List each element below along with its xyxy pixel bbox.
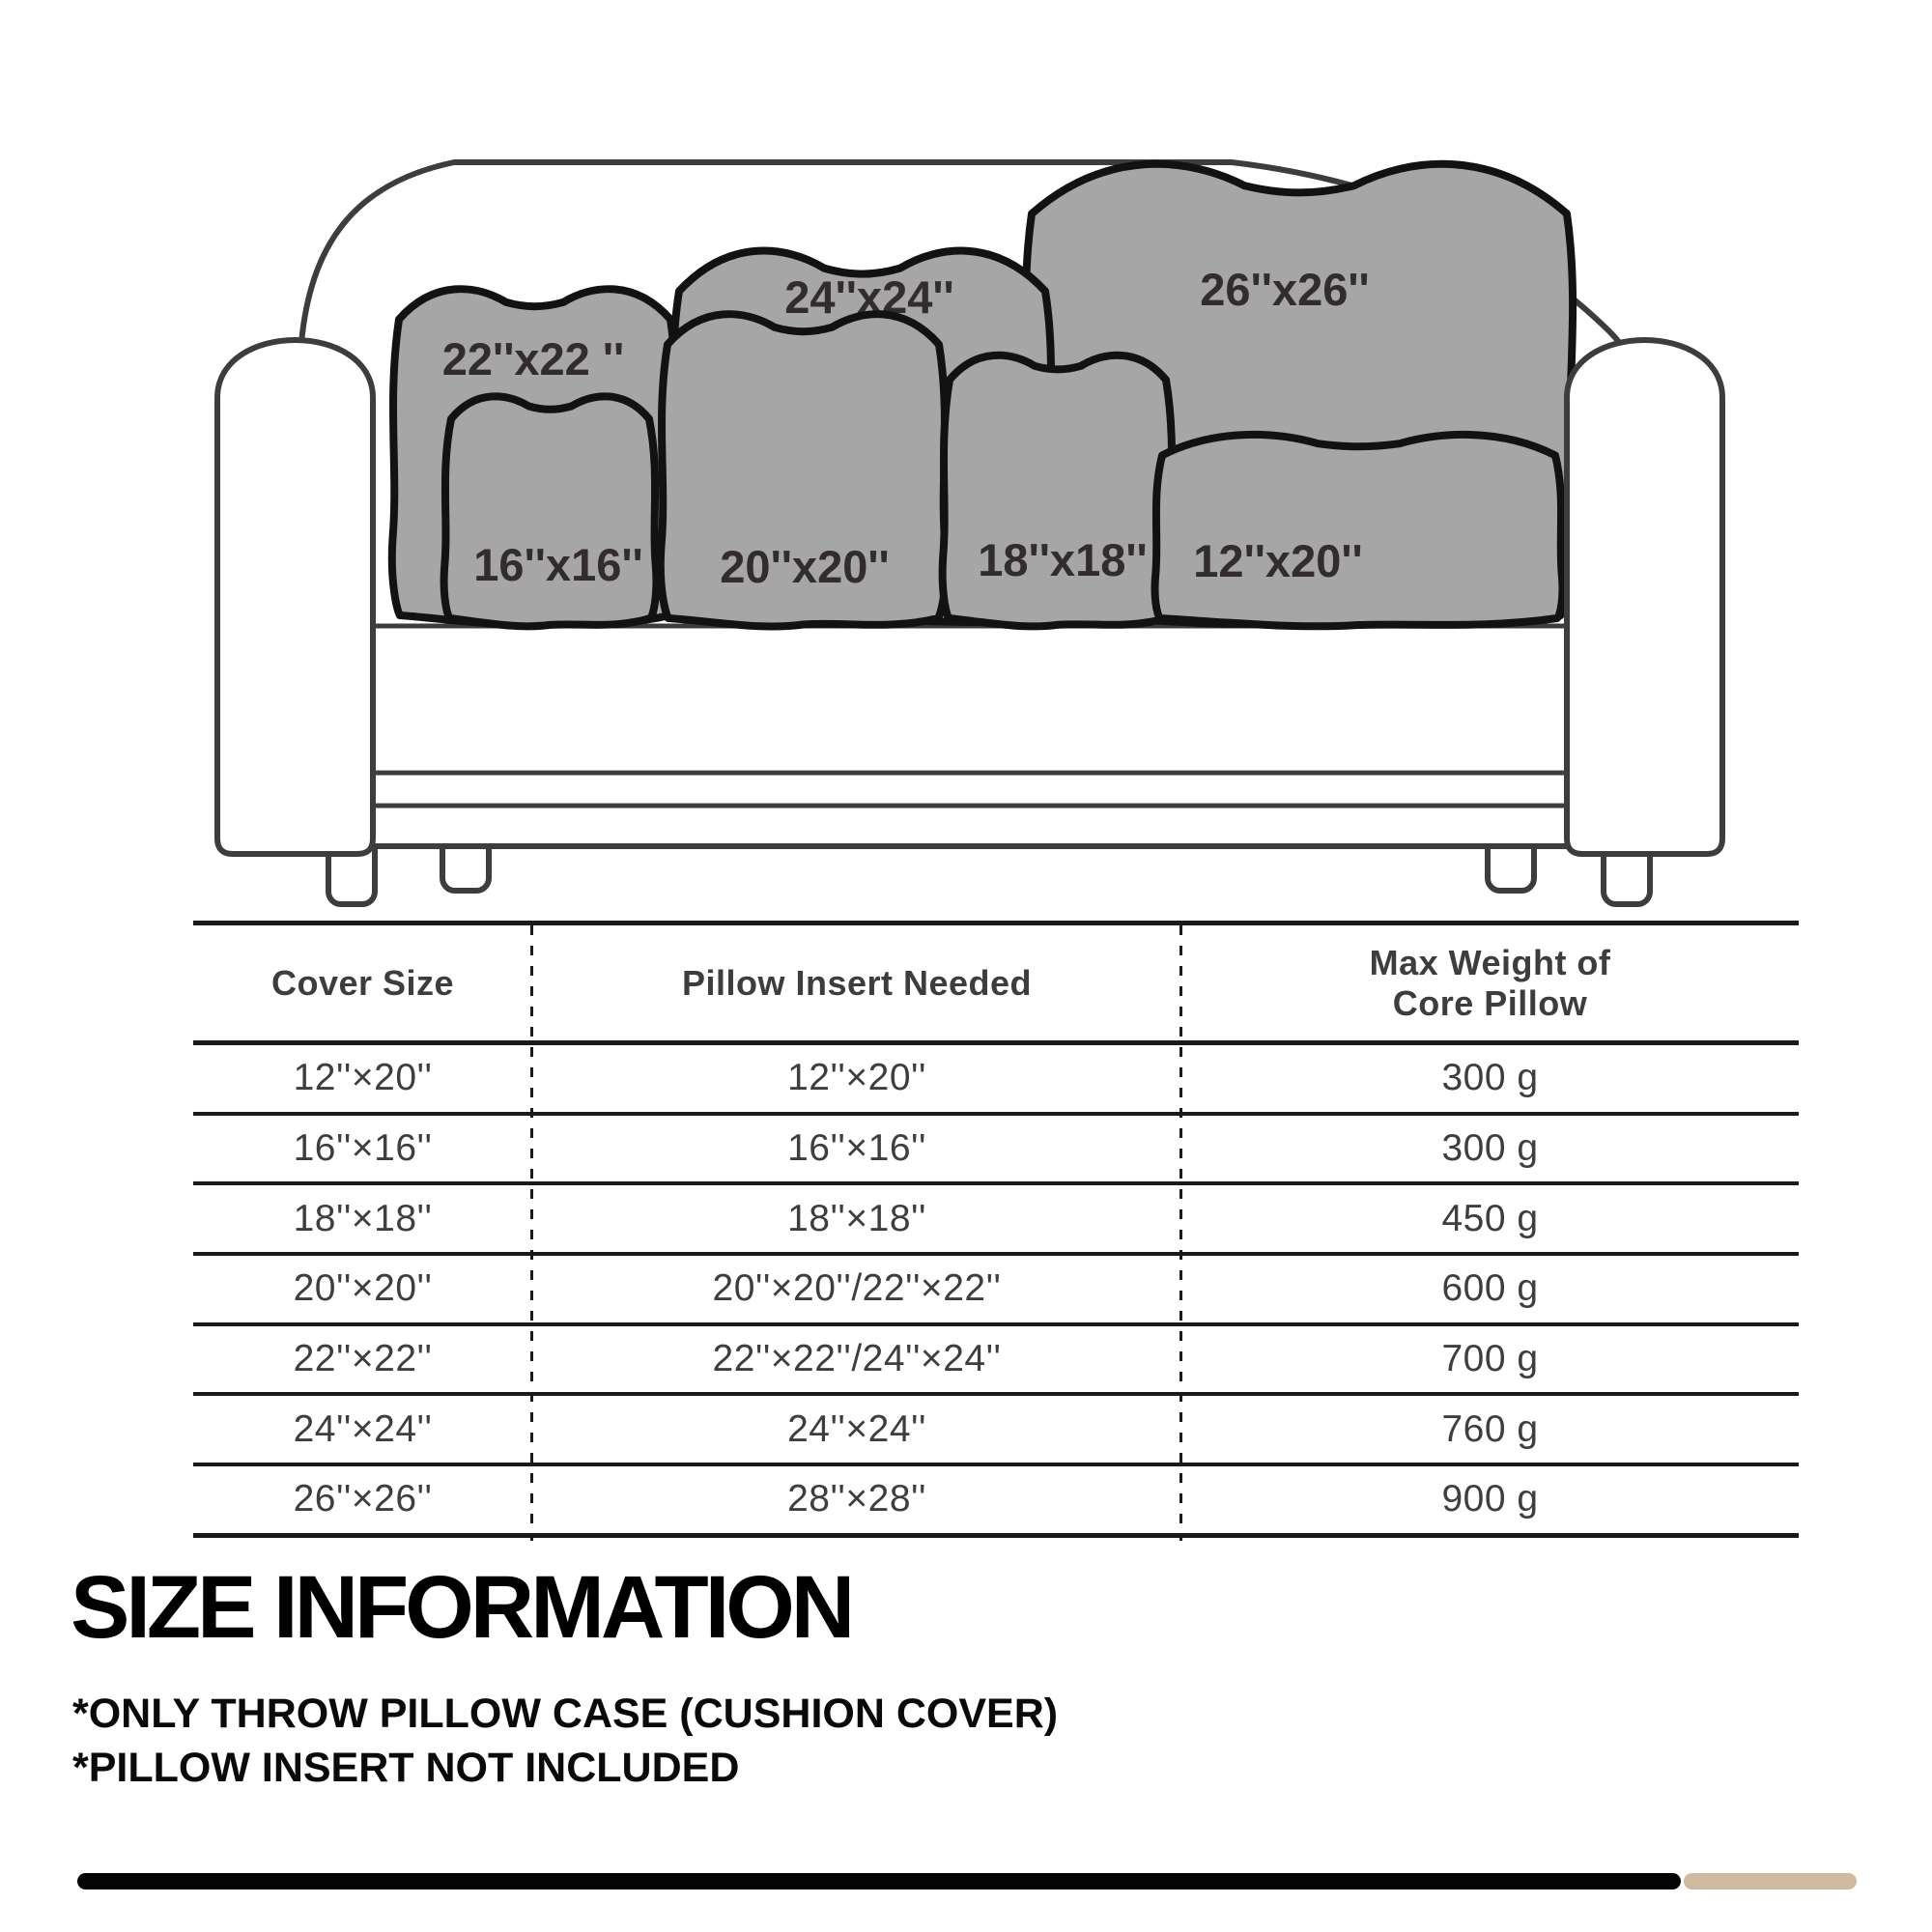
table-cell: 20''×20''/22''×22'' [532, 1267, 1181, 1310]
bottom-bar-tan-segment [1684, 1873, 1857, 1889]
sofa-right-arm [1567, 340, 1722, 854]
table-cell: 24''×24'' [532, 1408, 1181, 1451]
table-header-insert-needed: Pillow Insert Needed [532, 963, 1181, 1004]
pillow-label-20x20: 20''x20'' [720, 541, 889, 592]
pillow-label-26x26: 26''x26'' [1200, 264, 1369, 315]
bottom-bar [77, 1873, 1857, 1889]
note-only-cover: *ONLY THROW PILLOW CASE (CUSHION COVER) [72, 1690, 1058, 1738]
pillow-shape-12x20 [1155, 435, 1563, 626]
table-cell: 600 g [1181, 1267, 1799, 1310]
pillow-label-18x18: 18''x18'' [978, 534, 1147, 585]
table-cell: 12''×20'' [193, 1057, 532, 1099]
sofa-left-arm [217, 340, 373, 854]
note-insert-not-included: *PILLOW INSERT NOT INCLUDED [72, 1745, 739, 1792]
table-row: 18''×18''18''×18''450 g [193, 1185, 1799, 1256]
pillow-label-12x20: 12''x20'' [1193, 535, 1362, 586]
table-cell: 22''×22'' [193, 1338, 532, 1380]
table-cell: 16''×16'' [532, 1127, 1181, 1170]
bottom-bar-black-segment [77, 1873, 1681, 1889]
table-cell: 12''×20'' [532, 1057, 1181, 1099]
pillow-shape-18x18 [943, 355, 1174, 627]
table-row: 22''×22''22''×22''/24''×24''700 g [193, 1326, 1799, 1397]
table-row: 12''×20''12''×20''300 g [193, 1045, 1799, 1116]
pillow-label-22x22: 22''x22 '' [442, 333, 624, 384]
table-column-divider [1179, 925, 1182, 1541]
pillow-label-16x16: 16''x16'' [473, 539, 642, 590]
table-header-cover-size: Cover Size [193, 963, 532, 1004]
pillow-shape-16x16 [444, 396, 657, 626]
table-cell: 18''×18'' [193, 1198, 532, 1240]
table-cell: 20''×20'' [193, 1267, 532, 1310]
table-cell: 760 g [1181, 1408, 1799, 1451]
table-cell: 300 g [1181, 1127, 1799, 1170]
table-cell: 18''×18'' [532, 1198, 1181, 1240]
page-title: SIZE INFORMATION [71, 1557, 851, 1659]
table-cell: 700 g [1181, 1338, 1799, 1380]
table-row: 24''×24''24''×24''760 g [193, 1396, 1799, 1466]
table-body: 12''×20''12''×20''300 g16''×16''16''×16'… [193, 1045, 1799, 1538]
table-cell: 900 g [1181, 1478, 1799, 1520]
table-cell: 16''×16'' [193, 1127, 532, 1170]
table-cell: 22''×22''/24''×24'' [532, 1338, 1181, 1380]
table-cell: 26''×26'' [193, 1478, 532, 1520]
table-column-divider [530, 925, 533, 1541]
table-row: 20''×20''20''×20''/22''×22''600 g [193, 1256, 1799, 1326]
size-table: Cover Size Pillow Insert Needed Max Weig… [193, 921, 1799, 1538]
table-cell: 300 g [1181, 1057, 1799, 1099]
table-row: 26''×26''28''×28''900 g [193, 1466, 1799, 1538]
table-cell: 28''×28'' [532, 1478, 1181, 1520]
table-row: 16''×16''16''×16''300 g [193, 1116, 1799, 1186]
sofa-illustration: 26''x26''22''x22 ''24''x24''16''x16''20'… [0, 0, 1932, 927]
size-information-page: 26''x26''22''x22 ''24''x24''16''x16''20'… [0, 0, 1932, 1932]
table-header-max-weight: Max Weight of Core Pillow [1181, 943, 1799, 1024]
table-header-row: Cover Size Pillow Insert Needed Max Weig… [193, 925, 1799, 1045]
table-cell: 450 g [1181, 1198, 1799, 1240]
table-cell: 24''×24'' [193, 1408, 532, 1451]
